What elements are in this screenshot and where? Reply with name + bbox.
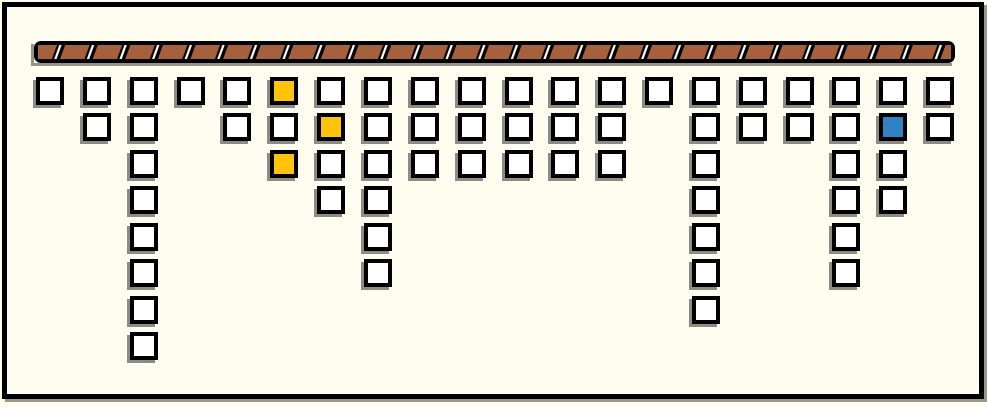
tile[interactable] xyxy=(411,150,439,178)
tile[interactable] xyxy=(786,77,814,105)
tile[interactable] xyxy=(130,77,158,105)
game-screen xyxy=(0,0,987,408)
tile[interactable] xyxy=(832,77,860,105)
tile[interactable] xyxy=(692,186,720,214)
tile[interactable] xyxy=(36,77,64,105)
tile[interactable] xyxy=(364,223,392,251)
tile[interactable] xyxy=(879,150,907,178)
tile[interactable] xyxy=(832,113,860,141)
tile[interactable] xyxy=(458,77,486,105)
ceiling-beam xyxy=(34,41,955,63)
tile[interactable] xyxy=(223,113,251,141)
tile[interactable] xyxy=(551,150,579,178)
tile[interactable] xyxy=(832,259,860,287)
tile-yellow[interactable] xyxy=(317,113,345,141)
tile[interactable] xyxy=(317,150,345,178)
tile-yellow[interactable] xyxy=(270,150,298,178)
tile[interactable] xyxy=(692,113,720,141)
tile[interactable] xyxy=(739,113,767,141)
tile[interactable] xyxy=(364,259,392,287)
tile[interactable] xyxy=(551,77,579,105)
tile[interactable] xyxy=(364,113,392,141)
tile[interactable] xyxy=(364,150,392,178)
tile[interactable] xyxy=(130,150,158,178)
tile[interactable] xyxy=(411,113,439,141)
tile[interactable] xyxy=(130,186,158,214)
tile[interactable] xyxy=(458,150,486,178)
tile[interactable] xyxy=(411,77,439,105)
tile[interactable] xyxy=(83,113,111,141)
tile-blue[interactable] xyxy=(879,113,907,141)
tile[interactable] xyxy=(130,113,158,141)
tile[interactable] xyxy=(879,77,907,105)
tile[interactable] xyxy=(739,77,767,105)
tile[interactable] xyxy=(786,113,814,141)
tile[interactable] xyxy=(83,77,111,105)
tile[interactable] xyxy=(177,77,205,105)
tile[interactable] xyxy=(505,113,533,141)
tile[interactable] xyxy=(832,223,860,251)
tile[interactable] xyxy=(270,113,298,141)
tile[interactable] xyxy=(692,150,720,178)
tile[interactable] xyxy=(926,113,954,141)
tile[interactable] xyxy=(598,150,626,178)
tile[interactable] xyxy=(317,77,345,105)
tile[interactable] xyxy=(692,259,720,287)
tile[interactable] xyxy=(551,113,579,141)
tile-yellow[interactable] xyxy=(270,77,298,105)
tile[interactable] xyxy=(692,223,720,251)
tile[interactable] xyxy=(832,150,860,178)
tile[interactable] xyxy=(317,186,345,214)
tile[interactable] xyxy=(130,259,158,287)
tile[interactable] xyxy=(130,332,158,360)
tile[interactable] xyxy=(458,113,486,141)
tile[interactable] xyxy=(692,77,720,105)
tile[interactable] xyxy=(505,77,533,105)
tile[interactable] xyxy=(926,77,954,105)
tile[interactable] xyxy=(832,186,860,214)
tile[interactable] xyxy=(130,223,158,251)
tile[interactable] xyxy=(692,296,720,324)
tile[interactable] xyxy=(879,186,907,214)
tile[interactable] xyxy=(505,150,533,178)
tile[interactable] xyxy=(130,296,158,324)
tile[interactable] xyxy=(598,77,626,105)
tile[interactable] xyxy=(645,77,673,105)
tile[interactable] xyxy=(364,186,392,214)
tile[interactable] xyxy=(364,77,392,105)
tile[interactable] xyxy=(598,113,626,141)
tile[interactable] xyxy=(223,77,251,105)
